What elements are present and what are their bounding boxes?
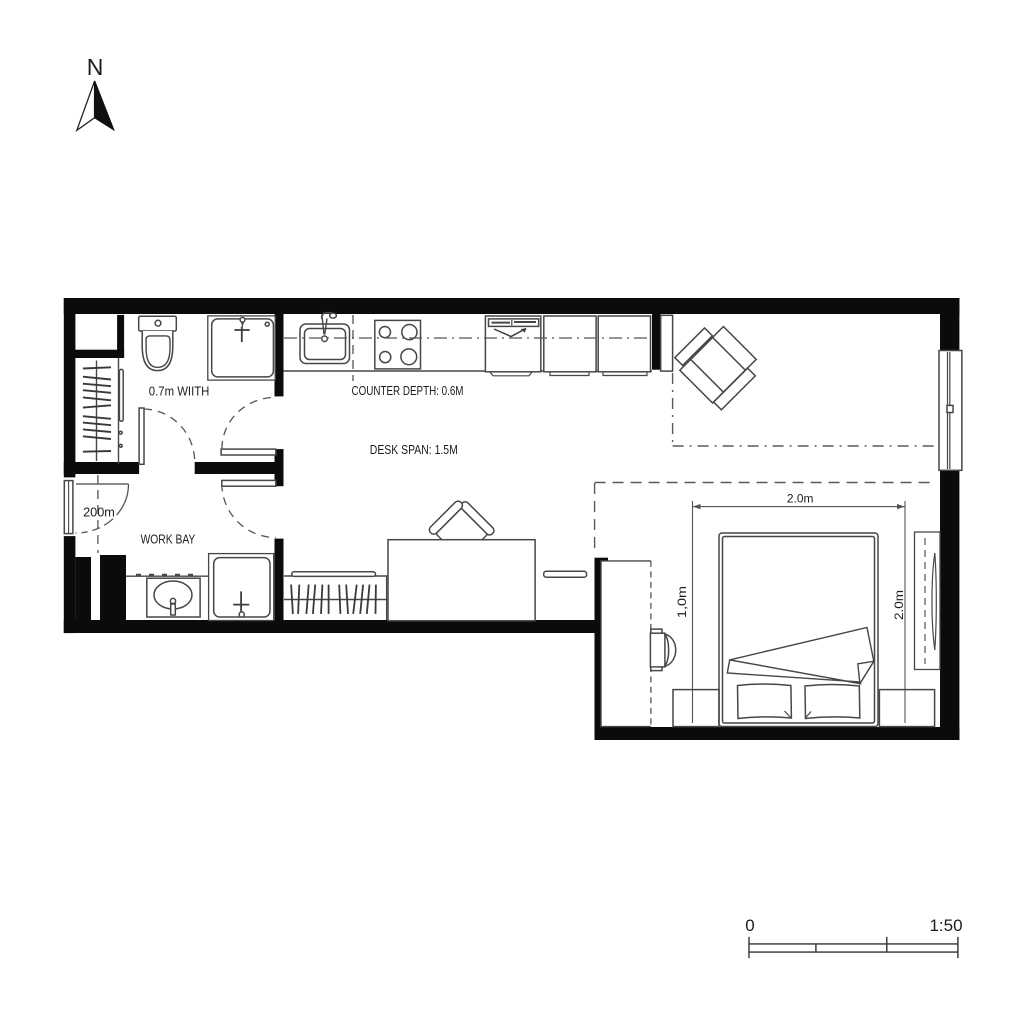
svg-text:0.7m WIITH: 0.7m WIITH (149, 384, 210, 399)
svg-text:N: N (87, 54, 104, 80)
svg-text:200m: 200m (83, 504, 115, 519)
svg-text:DESK SPAN: 1.5M: DESK SPAN: 1.5M (370, 442, 458, 457)
svg-text:1,0m: 1,0m (675, 586, 689, 618)
svg-text:0: 0 (745, 916, 754, 935)
svg-text:COUNTER DEPTH: 0.6M: COUNTER DEPTH: 0.6M (352, 383, 464, 398)
svg-text:2.0m: 2.0m (787, 492, 814, 506)
svg-text:2.0m: 2.0m (892, 590, 906, 620)
svg-text:1:50: 1:50 (929, 916, 962, 935)
svg-text:WORK BAY: WORK BAY (141, 532, 196, 547)
